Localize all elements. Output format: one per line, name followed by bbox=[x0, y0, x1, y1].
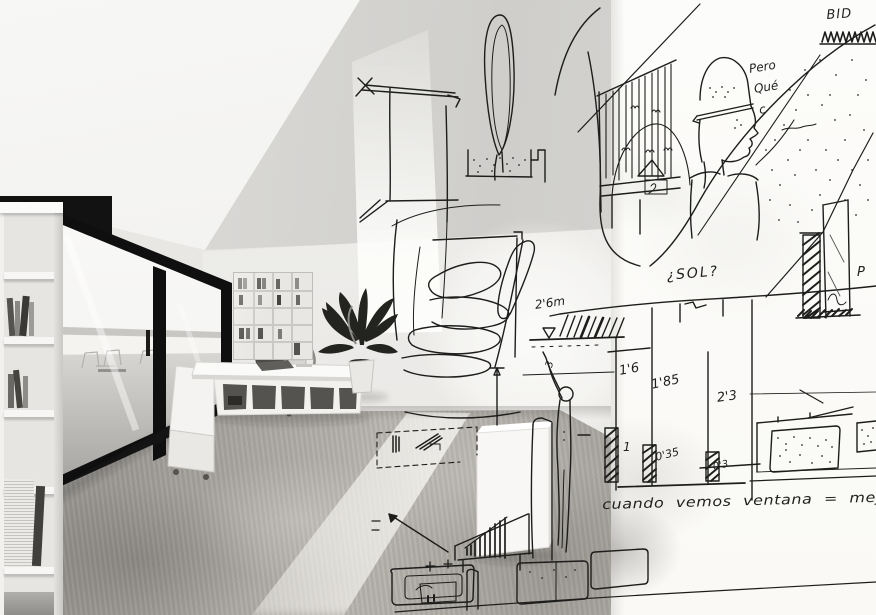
annotation-pero-3: c bbox=[758, 102, 767, 117]
panel-dots bbox=[777, 427, 874, 464]
annotation-dim-1: 1 bbox=[623, 440, 631, 454]
sketch-bid-hatch bbox=[820, 32, 876, 44]
slope-stipple bbox=[765, 59, 869, 223]
annotation-bid: BID bbox=[826, 6, 853, 23]
composite-render-sketch: BID Pero Qué c ¿SOL? 2'6m 1'6 1'85 2'3 1… bbox=[0, 0, 876, 615]
sketch-organic-blob bbox=[402, 232, 534, 377]
sketch-tree-loops bbox=[485, 15, 515, 180]
sketch-slatted-screen bbox=[578, 4, 700, 234]
sketch-level-marker bbox=[530, 315, 624, 347]
trough-dots bbox=[473, 157, 526, 173]
sketch-stippled-panels bbox=[757, 390, 876, 472]
sketch-trough bbox=[466, 150, 545, 182]
sketch-standing-figure bbox=[532, 352, 591, 560]
sketch-overlay bbox=[0, 0, 876, 615]
sketch-post-frame bbox=[356, 78, 460, 318]
annotation-dim-2-3: 2'3 bbox=[716, 388, 738, 406]
annotation-letter-p: P bbox=[857, 265, 865, 280]
